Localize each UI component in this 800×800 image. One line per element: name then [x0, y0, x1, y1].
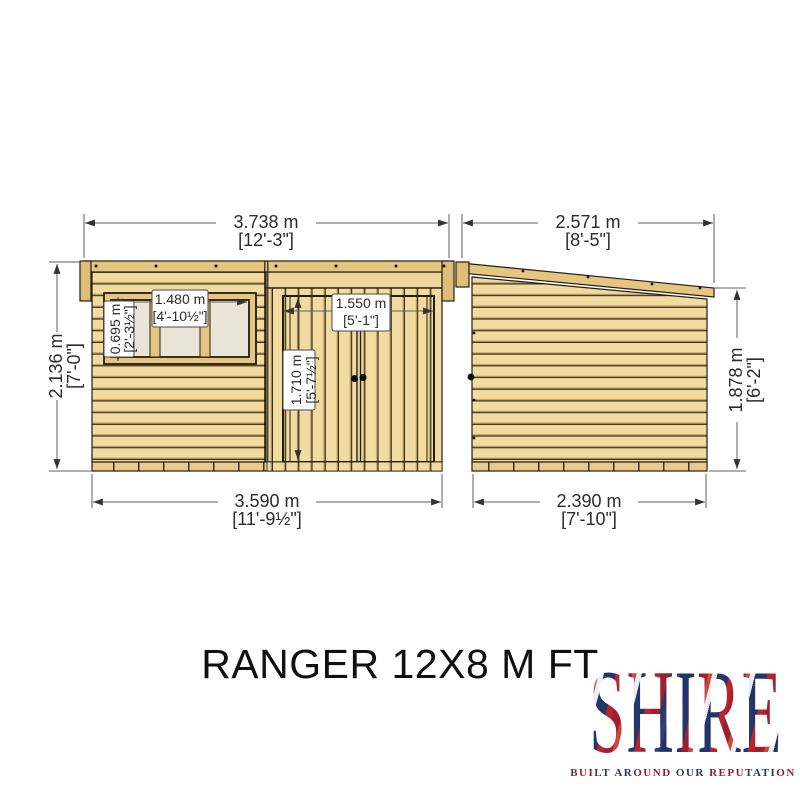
dim-window-width-imperial: [4'-10½"] — [152, 308, 207, 324]
dim-window-width-metric: 1.480 m — [155, 291, 206, 307]
front-roof-fascia — [84, 261, 449, 272]
front-elevation-drawing — [80, 261, 454, 471]
dim-front-width-metric: 3.738 m — [233, 212, 298, 232]
dim-window-height-imperial: [2'-3½"] — [121, 305, 137, 352]
dim-door-width-metric: 1.550 m — [336, 295, 387, 311]
side-elevation-drawing — [456, 262, 714, 471]
brand-wordmark: SHIRE — [589, 657, 782, 771]
dim-front-base-width: 3.590 m [11'-9½"] — [92, 474, 442, 529]
brand-logo: SHIRE BUILT AROUND OUR REPUTATION — [562, 686, 800, 779]
dim-front-overall-width: 3.738 m [12'-3"] — [84, 212, 449, 258]
dim-door-height-imperial: [5'-7½"] — [303, 356, 319, 403]
side-base-rail — [472, 462, 707, 471]
dim-side-width-metric: 2.571 m — [555, 212, 620, 232]
dim-door-width-imperial: [5'-1"] — [343, 312, 379, 328]
dim-side-eaves-height-imperial: [6'-2"] — [744, 357, 764, 403]
door-handle — [351, 375, 358, 382]
side-roof-front-fascia-end — [456, 262, 469, 287]
front-right-top-board — [266, 272, 442, 288]
dim-front-height-metric: 2.136 m — [46, 333, 66, 398]
dim-side-width-imperial: [8'-5"] — [565, 230, 611, 250]
dim-front-base-metric: 3.590 m — [234, 491, 299, 511]
front-door-sill-cladding — [267, 462, 442, 471]
door-handle — [360, 374, 367, 381]
dim-side-eaves-height: 1.878 m [6'-2"] — [709, 288, 764, 471]
dim-side-base-imperial: [7'-10"] — [561, 509, 617, 529]
dim-front-width-imperial: [12'-3"] — [238, 230, 294, 250]
dim-side-eaves-height-metric: 1.878 m — [726, 347, 746, 412]
dim-door-height-metric: 1.710 m — [288, 355, 304, 406]
shed-product-diagram-page: 3.738 m [12'-3"] 2.571 m [8'-5"] 2.136 m… — [0, 0, 800, 800]
front-left-corner-trim — [80, 261, 91, 301]
dim-front-height-imperial: [7'-0"] — [64, 343, 84, 389]
side-wall — [472, 277, 707, 462]
dim-side-base-width: 2.390 m [7'-10"] — [473, 474, 706, 529]
dim-side-base-metric: 2.390 m — [556, 491, 621, 511]
door-handle-edge-view — [468, 374, 475, 381]
dim-window-height: 0.695 m [2'-3½"] — [104, 297, 137, 361]
shed-dimension-diagram: 3.738 m [12'-3"] 2.571 m [8'-5"] 2.136 m… — [0, 0, 800, 560]
dim-front-base-imperial: [11'-9½"] — [232, 509, 302, 529]
